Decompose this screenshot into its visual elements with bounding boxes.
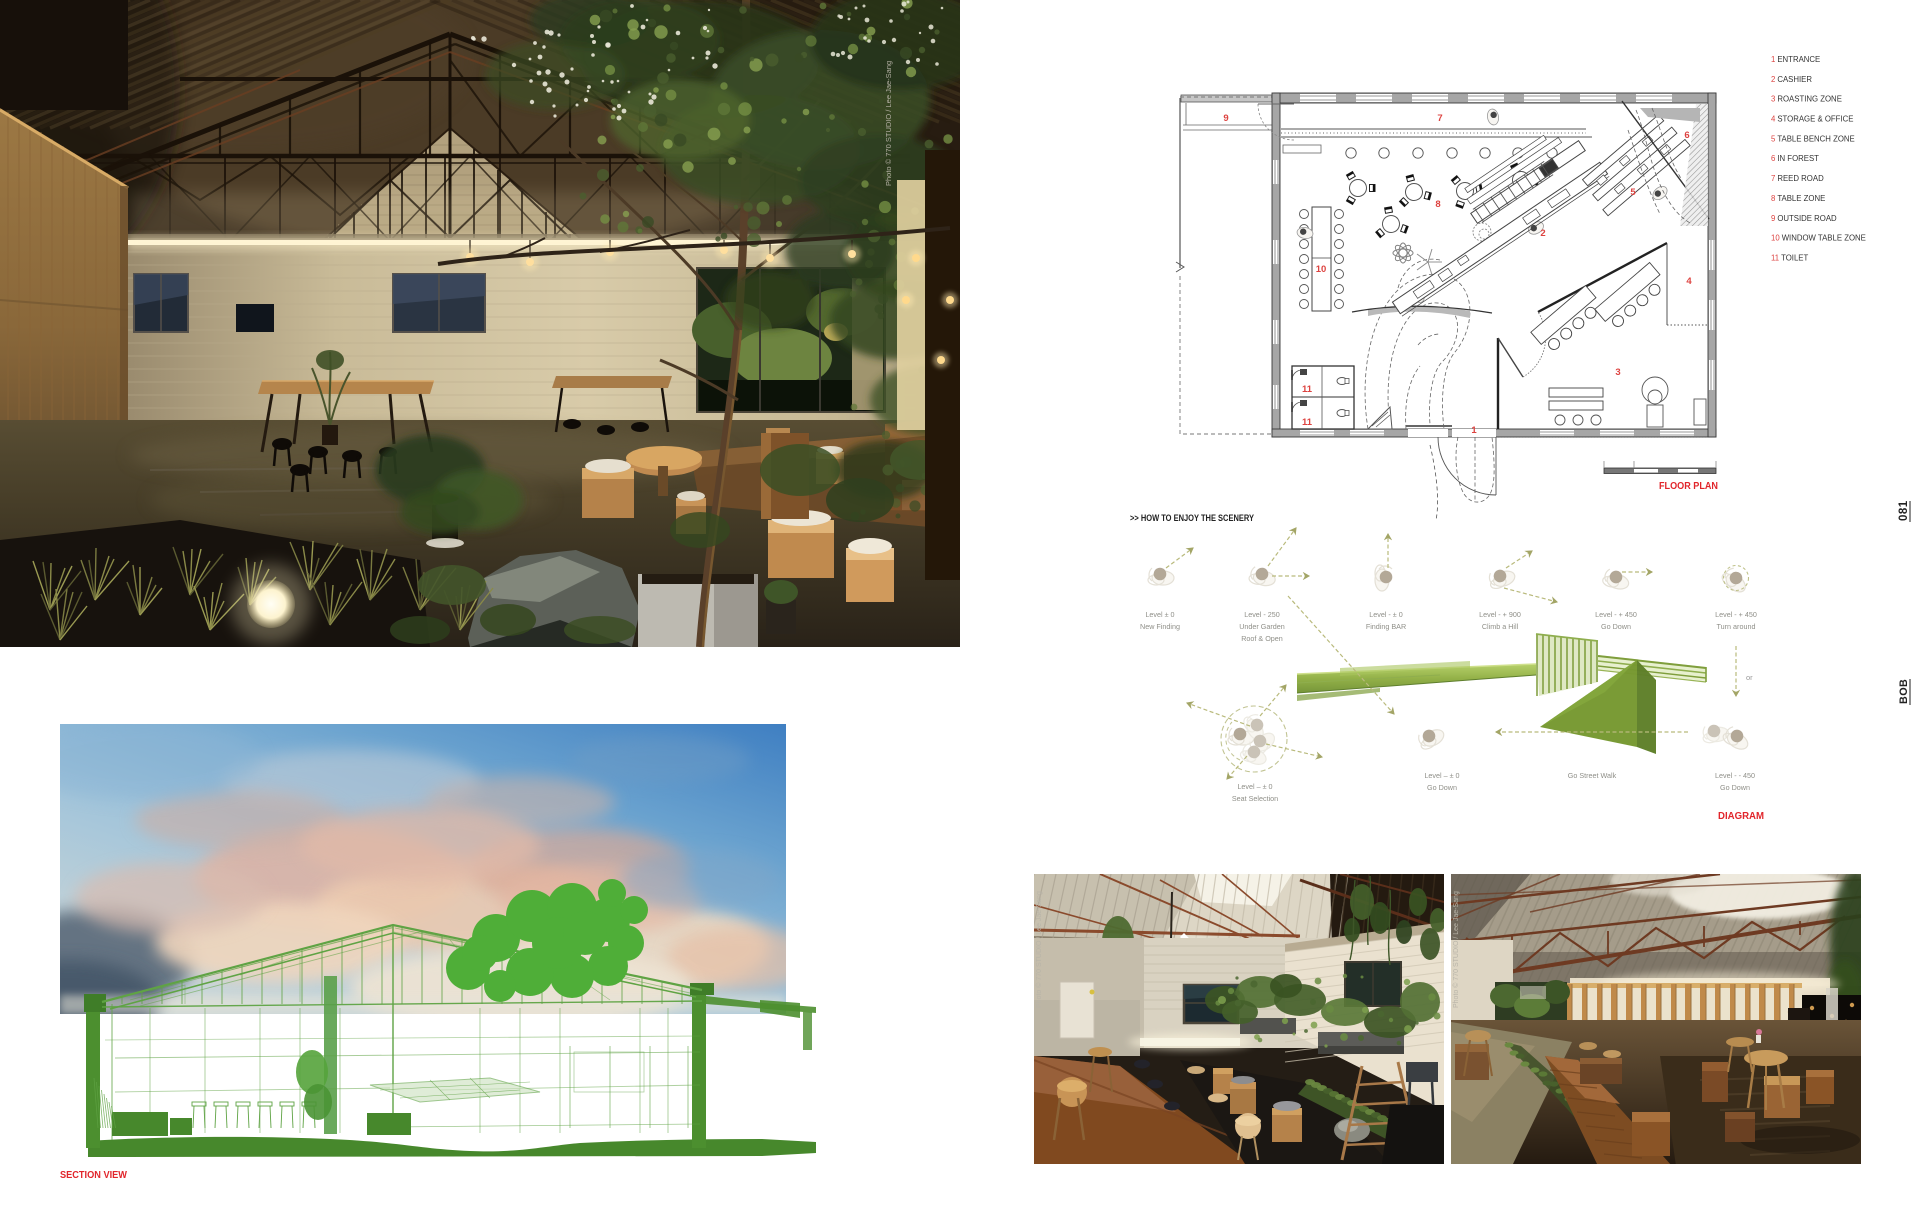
svg-text:1: 1 — [1471, 425, 1477, 436]
svg-text:SECTION VIEW: SECTION VIEW — [60, 1170, 127, 1181]
svg-text:FLOOR PLAN: FLOOR PLAN — [1659, 481, 1718, 492]
svg-text:Go Down: Go Down — [1427, 783, 1457, 792]
svg-text:Level - + 450: Level - + 450 — [1715, 610, 1757, 619]
svg-text:3ROASTING ZONE: 3ROASTING ZONE — [1771, 95, 1842, 104]
svg-text:5: 5 — [1630, 187, 1636, 198]
svg-text:8: 8 — [1435, 199, 1440, 210]
svg-text:Turn around: Turn around — [1717, 622, 1756, 631]
svg-text:Level - 250: Level - 250 — [1244, 610, 1280, 619]
svg-text:Level ± 0: Level ± 0 — [1145, 610, 1174, 619]
svg-text:10: 10 — [1316, 264, 1327, 275]
svg-text:Climb a Hill: Climb a Hill — [1482, 622, 1519, 631]
svg-text:Go Down: Go Down — [1720, 783, 1750, 792]
svg-text:3: 3 — [1615, 367, 1620, 378]
svg-text:Go Down: Go Down — [1601, 622, 1631, 631]
svg-text:Roof & Open: Roof & Open — [1241, 634, 1283, 643]
svg-text:BOB: BOB — [1898, 679, 1910, 704]
svg-text:11TOILET: 11TOILET — [1771, 254, 1808, 263]
svg-text:Level - - 450: Level - - 450 — [1715, 771, 1755, 780]
svg-text:7: 7 — [1437, 113, 1442, 124]
svg-text:10WINDOW TABLE ZONE: 10WINDOW TABLE ZONE — [1771, 234, 1866, 243]
svg-text:Photo © 770 STUDIO / Lee Jae-S: Photo © 770 STUDIO / Lee Jae-Sang — [884, 61, 893, 186]
svg-text:Level - + 900: Level - + 900 — [1479, 610, 1521, 619]
svg-text:1ENTRANCE: 1ENTRANCE — [1771, 55, 1820, 64]
svg-text:Photo © 770 STUDIO / Lee Jae-S: Photo © 770 STUDIO / Lee Jae-Sang — [1452, 891, 1460, 1008]
svg-text:4STORAGE & OFFICE: 4STORAGE & OFFICE — [1771, 115, 1853, 124]
svg-text:4: 4 — [1686, 276, 1692, 287]
svg-text:6IN FOREST: 6IN FOREST — [1771, 154, 1819, 163]
svg-text:7REED ROAD: 7REED ROAD — [1771, 174, 1824, 183]
svg-text:>> HOW TO ENJOY THE SCENERY: >> HOW TO ENJOY THE SCENERY — [1130, 513, 1254, 523]
svg-text:or: or — [1746, 673, 1753, 682]
svg-text:081: 081 — [1898, 500, 1910, 521]
svg-text:Level – ± 0: Level – ± 0 — [1237, 782, 1272, 791]
svg-text:DIAGRAM: DIAGRAM — [1718, 811, 1764, 822]
svg-text:8TABLE ZONE: 8TABLE ZONE — [1771, 194, 1825, 203]
svg-text:Finding BAR: Finding BAR — [1366, 622, 1406, 631]
svg-text:9OUTSIDE ROAD: 9OUTSIDE ROAD — [1771, 214, 1837, 223]
svg-text:11: 11 — [1302, 417, 1313, 428]
svg-text:Seat Selection: Seat Selection — [1232, 794, 1278, 803]
svg-text:Photo © 770 STUDIO / Lee Jae-S: Photo © 770 STUDIO / Lee Jae-Sang — [1035, 891, 1043, 1008]
svg-text:Level - ± 0: Level - ± 0 — [1369, 610, 1403, 619]
svg-text:9: 9 — [1223, 113, 1228, 124]
svg-text:Level – ± 0: Level – ± 0 — [1424, 771, 1459, 780]
svg-text:Level - + 450: Level - + 450 — [1595, 610, 1637, 619]
svg-text:5TABLE BENCH ZONE: 5TABLE BENCH ZONE — [1771, 134, 1855, 143]
svg-text:Under Garden: Under Garden — [1239, 622, 1285, 631]
svg-text:2CASHIER: 2CASHIER — [1771, 75, 1812, 84]
svg-text:6: 6 — [1684, 130, 1689, 141]
svg-text:11: 11 — [1302, 384, 1313, 395]
svg-text:2: 2 — [1540, 228, 1545, 239]
svg-text:New Finding: New Finding — [1140, 622, 1180, 631]
svg-text:Go Street Walk: Go Street Walk — [1568, 771, 1617, 780]
